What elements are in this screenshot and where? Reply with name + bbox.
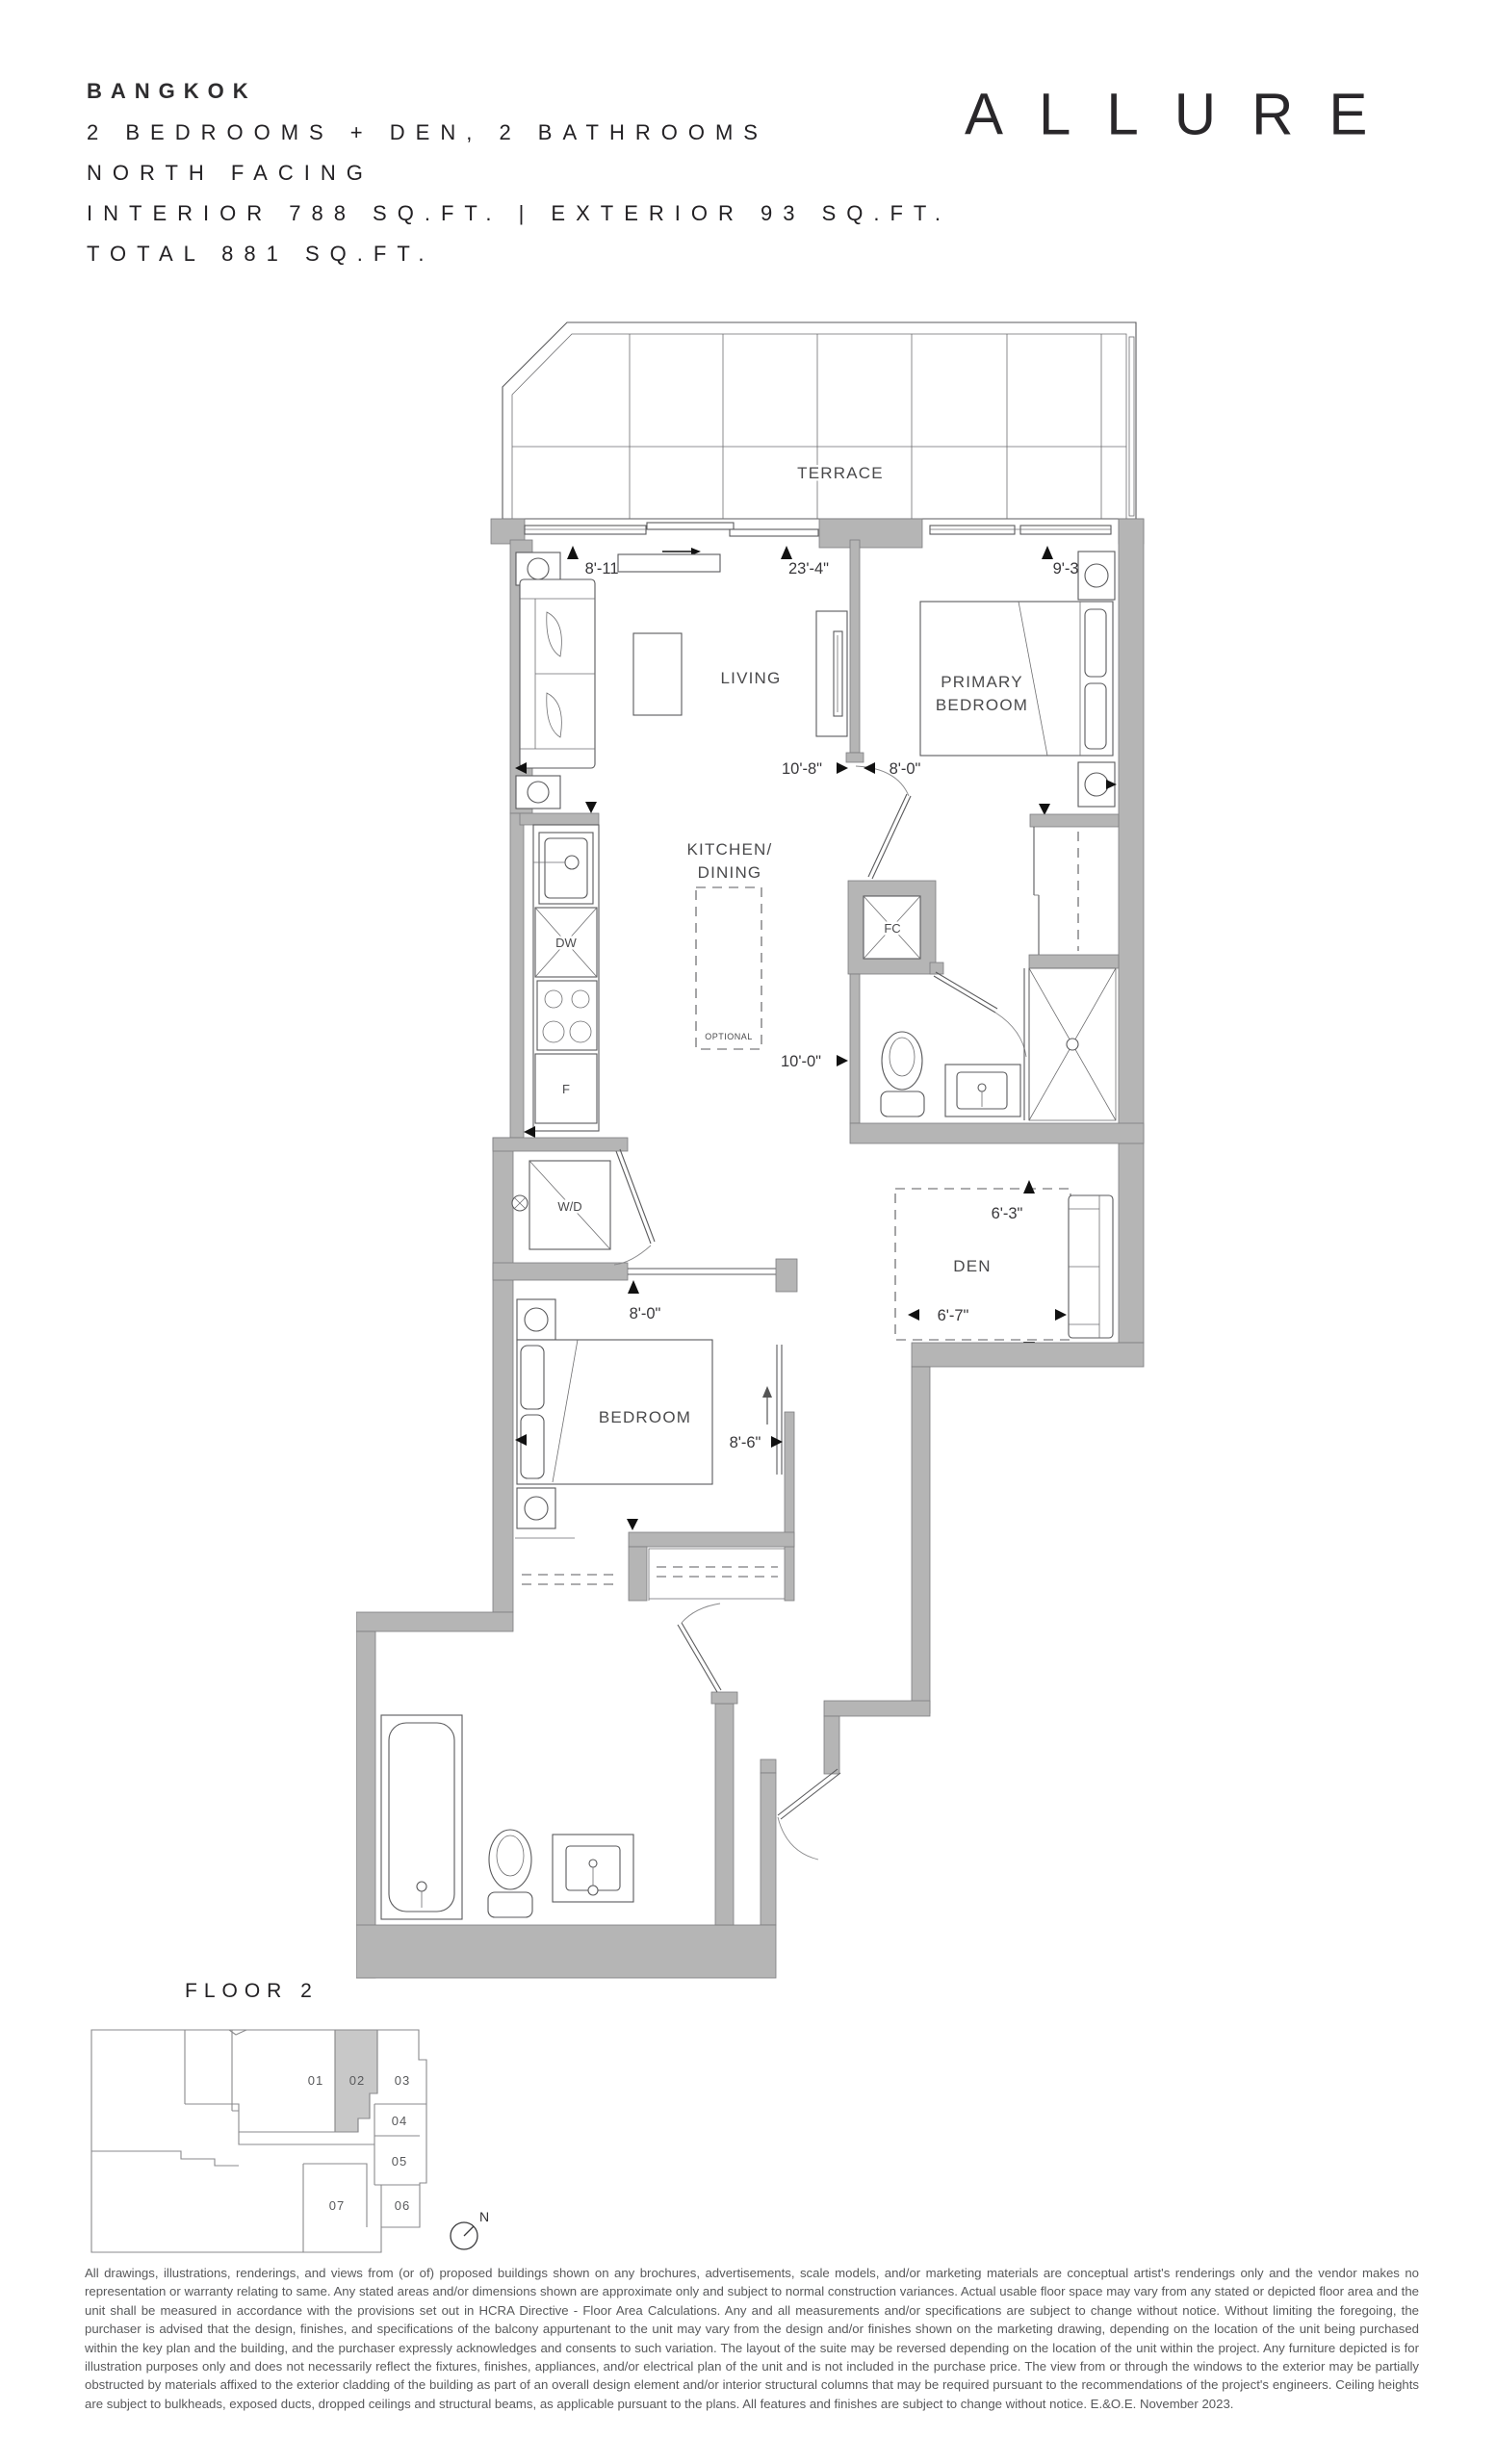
shower [1024,968,1116,1120]
dimension-row-mid: 10'-8" 8'-0" [782,760,921,778]
main-bathroom [381,1604,721,1919]
keyplan-unit-03: 03 [395,2073,410,2088]
floor-plan-drawing: TERRACE 8'-11" 23'-4" 9'-3" [356,318,1155,2045]
tv-console [816,611,847,736]
dimension-bedroom-width: 8'-0" [628,1280,661,1322]
keyplan-unit-02: 02 [349,2073,365,2088]
label-fridge: F [562,1082,570,1096]
keyplan-drawing: 01 02 03 04 05 06 07 N [85,2019,499,2265]
wall-right [1119,519,1144,1343]
unit-total-area: TOTAL 881 SQ.FT. [87,242,951,267]
north-label: N [479,2209,489,2224]
brand-logo: ALLURE [965,80,1403,147]
dim-bedroom-width: 8'-0" [630,1305,661,1322]
dim-overall-width: 23'-4" [788,560,829,577]
label-island-optional: OPTIONAL [705,1032,753,1041]
keyplan: 01 02 03 04 05 06 07 N [85,2019,499,2265]
room-label-terrace: TERRACE [797,464,884,482]
wall-bedroom-bottom [629,1532,794,1547]
keyplan-unit-05: 05 [392,2154,407,2169]
dim-bath-width: 10'-0" [781,1053,821,1070]
toilet-2 [488,1830,532,1917]
wall-kitchen-return [520,813,599,825]
room-label-den: DEN [953,1257,992,1275]
wall-living-primary [846,540,911,879]
unit-config: 2 BEDROOMS + DEN, 2 BATHROOMS [87,120,951,145]
wall-bath-bottom [850,1123,1144,1143]
laundry-door [614,1149,655,1265]
keyplan-unit-06: 06 [395,2198,410,2213]
wall-shower-top [1029,955,1119,968]
wall-entry-top [824,1701,930,1716]
keyplan-title: FLOOR 2 [185,1980,319,2003]
keyplan-unit-07: 07 [329,2198,345,2213]
wall-entry-nub [761,1759,776,1773]
wall-entry-side [824,1716,839,1774]
toilet [881,1032,924,1116]
cooktop [537,981,597,1050]
optional-island: OPTIONAL [696,887,761,1049]
entry-door [778,1769,840,1860]
hall-pocket-door [628,1259,797,1292]
bathroom2-sink [553,1835,633,1902]
ensuite-door [934,972,1026,1057]
den-sofa [1069,1195,1113,1338]
laundry-closet: W/D [493,1138,655,1280]
unit-name: BANGKOK [87,79,951,104]
room-label-living: LIVING [721,669,782,687]
wall-left-lower [493,1138,513,1612]
primary-bedroom-door [856,766,911,879]
room-label-primary-2: BEDROOM [936,696,1028,714]
keyplan-unit-04: 04 [392,2114,407,2128]
wall-bath2-top [356,1612,513,1631]
wall-den-bottom [912,1343,1144,1367]
fridge: F [535,1054,597,1123]
coffee-table [633,633,682,715]
dim-den-depth: 6'-7" [938,1307,969,1324]
kitchen: DW F KITCHEN/ DINING OPTIONAL [524,825,772,1138]
sofa [520,579,595,768]
bathroom-sink [945,1065,1020,1116]
balcony-door-panel [647,523,734,529]
valve-icon [512,1195,528,1211]
wall-left-kitchen [510,813,524,1138]
hall-closet [649,1549,785,1601]
bathroom2-door [678,1604,721,1692]
primary-closet [1030,804,1119,955]
unit-areas: INTERIOR 788 SQ.FT. | EXTERIOR 93 SQ.FT. [87,201,951,226]
floor-plan: TERRACE 8'-11" 23'-4" 9'-3" [356,318,1155,2045]
room-label-primary-1: PRIMARY [941,673,1023,691]
north-compass-icon: N [451,2209,489,2249]
label-dishwasher: DW [555,936,577,950]
terrace: TERRACE [503,322,1136,519]
disclaimer-text: All drawings, illustrations, renderings,… [85,2264,1419,2413]
wall-right-lower [912,1367,930,1713]
dimension-bath: 10'-0" [781,1053,848,1070]
unit-facing: NORTH FACING [87,161,951,186]
dishwasher: DW [535,908,597,977]
bathtub [381,1715,462,1919]
room-label-kitchen-2: DINING [698,863,762,882]
label-washer-dryer: W/D [557,1199,581,1214]
closet-label-fc: FC [884,921,900,936]
bedroom-sliding-door: 8'-6" [730,1345,794,1601]
wall-bath-left [850,974,860,1123]
room-label-kitchen-1: KITCHEN/ [687,840,773,859]
primary-bedroom: PRIMARY BEDROOM [920,552,1117,807]
dim-den-width: 6'-3" [992,1205,1023,1222]
den: DEN 6'-3" 6'-7" [895,1180,1113,1353]
front-closet: FC [848,881,936,974]
wall-bath2-right [715,1704,734,1925]
header: BANGKOK 2 BEDROOMS + DEN, 2 BATHROOMS NO… [87,79,951,282]
room-label-bedroom: BEDROOM [599,1408,691,1426]
dim-living-depth: 10'-8" [782,760,822,778]
wall-closet-divider [629,1547,647,1601]
dim-primary-depth: 8'-0" [890,760,921,778]
wall-bath2-nub [711,1692,737,1704]
floorplan-page: { "header": { "unit_name": "BANGKOK", "c… [0,0,1496,2464]
keyplan-unit-01: 01 [308,2073,323,2088]
kitchen-sink [533,833,593,904]
ensuite-bathroom [881,962,1116,1120]
wall-entry-left [761,1773,776,1925]
wall-bath2-bottom [356,1925,776,1978]
dim-bedroom-depth: 8'-6" [730,1434,761,1451]
